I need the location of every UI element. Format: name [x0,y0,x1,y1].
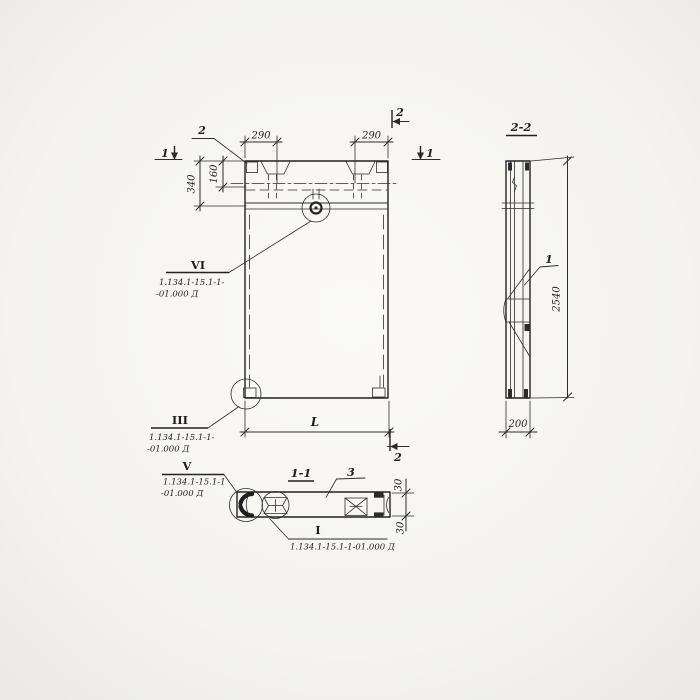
section-2-2-title: 2-2 [510,120,532,134]
dim-30-bottom: 30 [396,521,407,534]
column-outline [506,161,530,398]
leader-line [270,519,289,540]
leader-line [229,221,311,273]
arrow-down-icon [417,153,424,161]
elevation-view [231,161,398,409]
callout-vi-ref2: -01.000 Д [156,290,199,300]
callout-v-ref1: 1.134.1-15.1-1 [163,478,226,488]
section-1-1-view: 1-1 3 30 30 V [161,459,414,553]
callout-v-numeral: V [182,459,193,473]
dim-2540: 2540 [552,286,563,313]
panel-outline [245,161,388,398]
section-marker-2-top: 2 [395,106,404,119]
callout-iii-numeral: III [172,413,188,427]
callout-vi-numeral: VI [190,258,205,272]
arrow-left-icon [393,118,401,125]
dim-length: L [310,415,319,429]
end-cup-right [387,498,389,513]
callout-2-anchor: 2 [197,124,206,137]
dim-290-right: 290 [361,131,382,142]
anchor-hatch-top-left [247,162,258,173]
drawing-sheet: 290 290 340 160 L 1 1 2 2 [0,0,700,700]
callout-iii-ref1: 1.134.1-15.1-1- [149,433,215,443]
callout-1-label: 1 [545,253,553,266]
leader-line [208,407,239,429]
hole-center [314,206,317,209]
detail-circle-iii [231,379,261,409]
callout-i-ref: 1.134.1-15.1-1-01.000 Д [290,543,396,553]
elevation-callouts: 2 VI 1.134.1-15.1-1- -01.000 Д III 1.134… [147,124,311,455]
dim-290-left: 290 [250,131,271,142]
callout-v-ref2: -01.000 Д [161,489,204,499]
section-marker-1-left: 1 [161,147,169,160]
recess-left [261,162,290,175]
key-chevron-left [264,498,269,514]
dim-340: 340 [187,174,198,194]
leader-line [525,267,541,285]
technical-drawing: 290 290 340 160 L 1 1 2 2 [0,0,700,700]
leader-line [326,479,337,498]
dim-160: 160 [209,164,220,184]
callout-iii-ref2: -01.000 Д [147,445,190,455]
section-marker-1-right: 1 [426,147,434,160]
recess-right [346,162,375,175]
callout-3-label: 3 [347,466,355,479]
key-chevron-right [283,498,288,514]
leader-line [224,475,238,494]
callout-vi-ref1: 1.134.1-15.1-1- [159,278,225,288]
section-2-2-view: 2-2 200 2540 1 [499,120,574,438]
arrow-left-icon [390,443,398,450]
arrow-down-icon [171,153,178,161]
dim-200: 200 [507,419,528,430]
anchor-hatch-top-right [377,162,388,173]
section-marker-2-bottom: 2 [393,451,402,464]
dim-30-top: 30 [394,478,405,491]
anchor-hatch-bottom-right [373,388,386,397]
callout-i-numeral: I [315,523,320,537]
section-1-1-title: 1-1 [291,466,312,480]
